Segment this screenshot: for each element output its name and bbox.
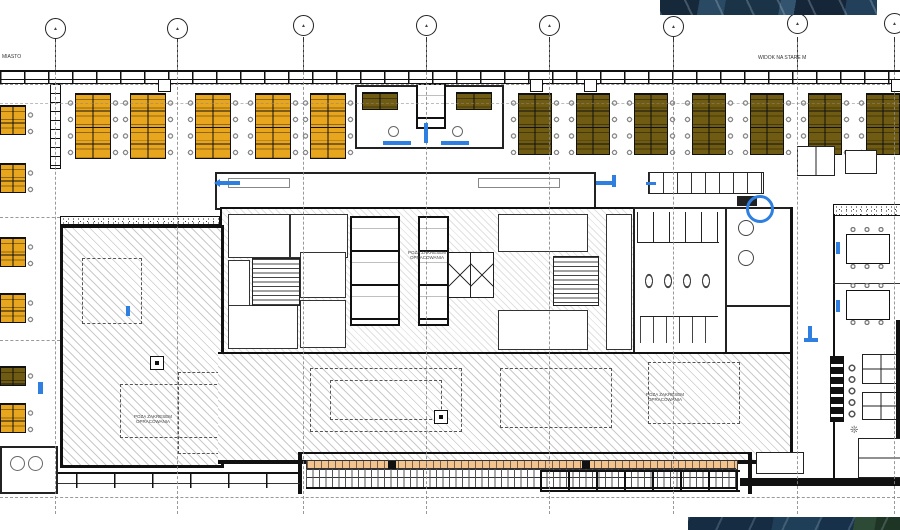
chair-column <box>26 105 35 135</box>
grid-bubble: ▲ <box>539 15 560 36</box>
blue-tag <box>126 306 130 316</box>
column-marker-dot <box>439 415 443 419</box>
core-room <box>498 214 588 252</box>
core-room <box>300 300 346 348</box>
wc-fixture <box>28 456 43 471</box>
label-old-town-view: WIDOK NA STARE M <box>758 55 806 61</box>
core-room <box>228 214 290 258</box>
chair-column <box>26 366 35 386</box>
core-room <box>300 252 346 298</box>
blue-tag <box>38 382 43 394</box>
central-shaft <box>416 83 446 129</box>
photo-top-building <box>660 0 877 15</box>
blue-tag <box>612 175 616 187</box>
facade-top <box>0 70 900 84</box>
floor-plan-canvas: ▲ ▲ ▲ ▲ ▲ ▲ ▲ ▲ MIASTO WIDOK NA STARE M <box>0 0 900 530</box>
grid-bubble: ▲ <box>293 15 314 36</box>
grid-bubble-label: ▲ <box>671 24 676 30</box>
sink-row <box>640 316 718 343</box>
grid-line-horizontal <box>0 497 900 498</box>
grid-line-horizontal <box>0 84 900 85</box>
chair-column <box>26 403 35 433</box>
grid-bubble-label: ▲ <box>424 23 429 29</box>
wc-fixtures <box>640 266 718 298</box>
column-marker <box>150 356 164 370</box>
blue-tag <box>836 300 840 312</box>
grid-bubble-label: ▲ <box>301 23 306 29</box>
grid-bubble-label: ▲ <box>53 26 58 32</box>
grid-bubble: ▲ <box>884 13 900 34</box>
scope-label-line2: OPRACOWANIA <box>630 397 700 402</box>
desk-cluster-yellow <box>0 105 35 135</box>
grid-line-horizontal <box>0 217 60 218</box>
desk-grid <box>0 293 26 323</box>
blue-tag <box>808 326 812 338</box>
grid-line-vertical <box>55 42 56 514</box>
chair-row <box>846 226 888 233</box>
elevator-bank <box>418 216 449 326</box>
core-room <box>498 310 588 350</box>
grid-line-horizontal <box>0 103 900 104</box>
staircase <box>553 256 599 306</box>
elevator-bank <box>350 216 400 326</box>
scope-label-line2: OPRACOWANIA <box>392 255 462 260</box>
meeting-table <box>846 234 890 264</box>
blue-tag <box>804 338 818 342</box>
grid-line-vertical <box>673 42 674 514</box>
desk-grid <box>0 237 26 267</box>
grid-node-square <box>530 79 543 92</box>
desk-grid <box>0 403 26 433</box>
storage-box <box>797 146 835 176</box>
wall-insulated <box>60 216 220 225</box>
grid-node-square <box>891 79 900 92</box>
blue-tag <box>596 181 612 185</box>
grid-bubble-label: ▲ <box>795 21 800 27</box>
grid-bubble-label: ▲ <box>892 21 897 27</box>
long-room-furniture <box>478 178 560 188</box>
blue-tag <box>383 141 411 145</box>
wall-bottom-right <box>740 478 900 486</box>
grid-line-vertical <box>797 42 798 514</box>
blue-tag <box>836 242 840 254</box>
railing-post <box>582 461 590 469</box>
railing-post <box>388 461 396 469</box>
desk-cluster-dark <box>0 366 35 386</box>
desk-grid <box>0 105 26 135</box>
desk-grid <box>362 92 398 110</box>
grid-bubble-label: ▲ <box>547 23 552 29</box>
grid-line-horizontal <box>0 340 60 341</box>
wc-fixture <box>388 126 399 137</box>
kitchen-counter-row <box>648 172 764 194</box>
chair-column <box>26 163 35 193</box>
desk-grid <box>0 366 26 386</box>
desk-grid <box>0 163 26 193</box>
wc-fixture <box>738 220 754 236</box>
grid-line-vertical <box>549 42 550 514</box>
desk-cluster-yellow <box>0 403 35 433</box>
wc-fixture <box>10 456 25 471</box>
grid-line-vertical <box>177 42 178 514</box>
wc-fixture <box>738 250 754 266</box>
chair-row <box>846 319 888 326</box>
desk-cluster-yellow <box>0 237 35 267</box>
grid-line-vertical <box>303 42 304 514</box>
column-marker <box>434 410 448 424</box>
desk-grid <box>456 92 492 110</box>
grid-node-square <box>158 79 171 92</box>
spiral-stair-icon <box>746 195 774 223</box>
blue-tag <box>646 182 656 185</box>
cafe-counter <box>830 356 844 422</box>
scope-label: POZA ZAKRESEM OPRACOWANIA <box>630 392 700 402</box>
blue-tag <box>441 141 469 145</box>
grid-bubble: ▲ <box>167 18 188 39</box>
grid-bubble: ▲ <box>416 15 437 36</box>
photo-bottom-building <box>688 517 900 530</box>
blue-tag <box>424 123 428 143</box>
furniture-outline <box>82 258 142 324</box>
wc-fixture <box>452 126 463 137</box>
staircase <box>252 258 300 306</box>
meeting-table <box>846 290 890 320</box>
round-tables <box>846 362 858 418</box>
grid-node-square <box>584 79 597 92</box>
chair-column <box>26 293 35 323</box>
bottom-left-room <box>0 446 58 494</box>
stall-partitions <box>637 212 719 243</box>
chair-column <box>26 237 35 267</box>
core-room <box>228 305 298 349</box>
grid-bubble: ▲ <box>45 18 66 39</box>
scope-label-line2: OPRACOWANIA <box>118 419 188 424</box>
grid-bubble: ▲ <box>787 13 808 34</box>
planter-row <box>540 470 740 492</box>
scope-label: POZA ZAKRESEM OPRACOWANIA <box>118 414 188 424</box>
blue-tag <box>220 181 240 185</box>
label-city-view: MIASTO <box>2 54 21 60</box>
desk-cluster-yellow <box>0 293 35 323</box>
chair-row <box>846 263 888 270</box>
desk-cluster-yellow <box>0 163 35 193</box>
wall-insulated <box>833 204 900 216</box>
grid-line-vertical <box>894 42 895 514</box>
furniture-outline <box>500 368 612 428</box>
column-marker-dot <box>155 361 159 365</box>
shaft-x <box>470 252 494 298</box>
grid-bubble-label: ▲ <box>175 26 180 32</box>
grid-line-vertical <box>426 42 427 514</box>
scope-label: POZA ZAKRESEM OPRACOWANIA <box>392 250 462 260</box>
core-room <box>606 214 632 350</box>
plant-icon: ❊ <box>850 426 858 436</box>
grid-bubble: ▲ <box>663 16 684 37</box>
storage-box <box>845 150 877 174</box>
chair-row <box>846 282 888 289</box>
wall-meeting-zone <box>833 214 835 480</box>
